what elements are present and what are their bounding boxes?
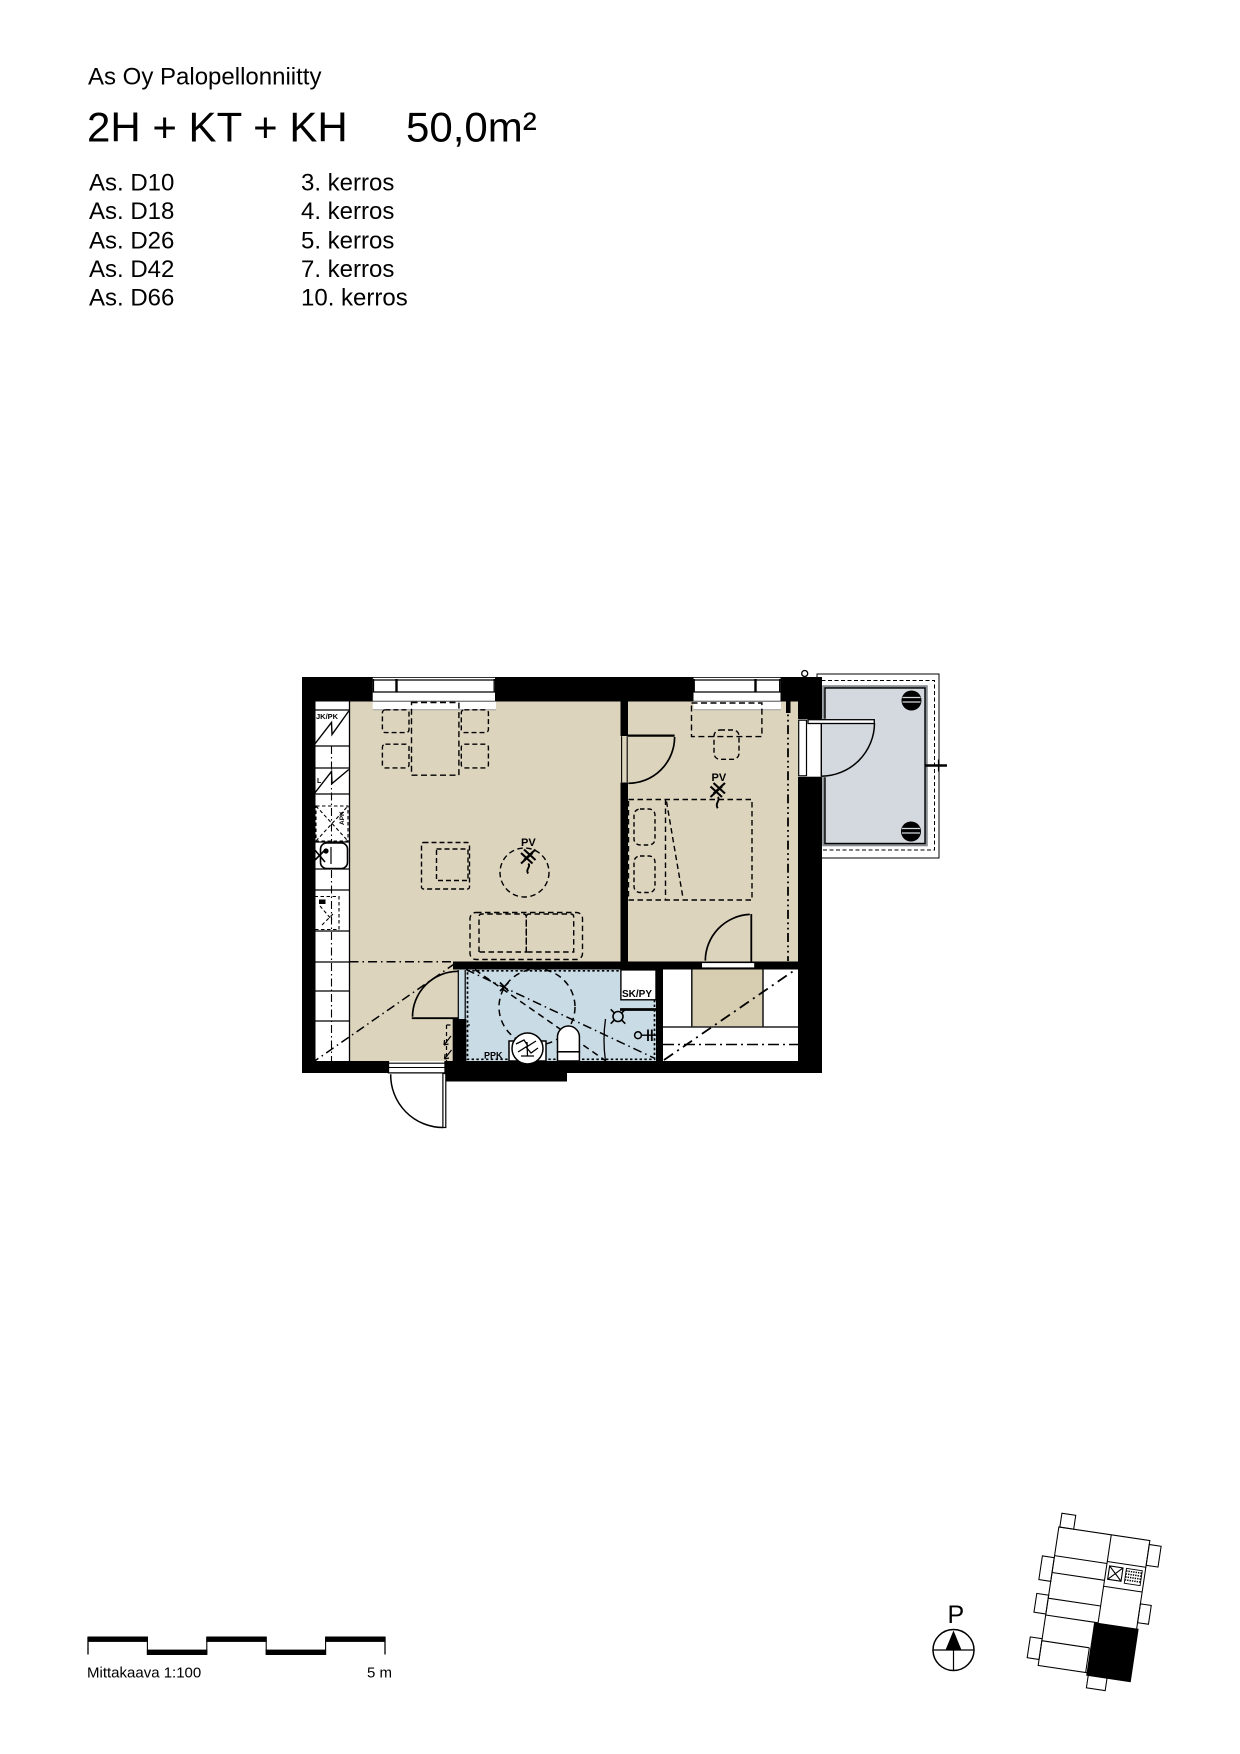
svg-text:SK/PY: SK/PY — [622, 989, 652, 1000]
svg-text:4. kerros: 4. kerros — [301, 198, 394, 225]
svg-text:PV: PV — [712, 772, 727, 784]
svg-text:3. kerros: 3. kerros — [301, 170, 394, 197]
svg-text:2H + KT + KH: 2H + KT + KH — [87, 104, 348, 151]
svg-text:As. D18: As. D18 — [89, 198, 174, 225]
svg-text:As Oy Palopellonniitty: As Oy Palopellonniitty — [88, 64, 321, 91]
svg-text:10. kerros: 10. kerros — [301, 285, 408, 312]
svg-text:PV: PV — [521, 837, 536, 849]
svg-text:As. D26: As. D26 — [89, 228, 174, 255]
svg-text:50,0m²: 50,0m² — [406, 104, 537, 151]
svg-text:As. D42: As. D42 — [89, 256, 174, 283]
svg-text:As. D66: As. D66 — [89, 285, 174, 312]
svg-text:JK/PK: JK/PK — [316, 712, 339, 721]
svg-text:5. kerros: 5. kerros — [301, 228, 394, 255]
svg-text:Mittakaava 1:100: Mittakaava 1:100 — [87, 1665, 201, 1682]
svg-text:7. kerros: 7. kerros — [301, 256, 394, 283]
svg-text:APK: APK — [339, 811, 346, 825]
svg-text:PPK: PPK — [484, 1051, 503, 1061]
svg-text:5 m: 5 m — [367, 1665, 392, 1682]
svg-text:P: P — [948, 1601, 965, 1629]
svg-text:As. D10: As. D10 — [89, 170, 174, 197]
